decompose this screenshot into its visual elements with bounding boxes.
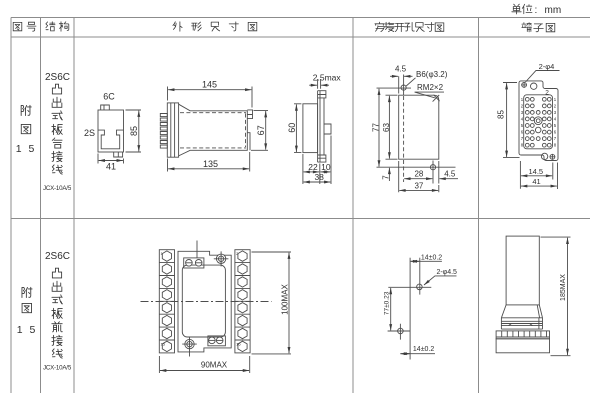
svg-text:JCX-10A/5: JCX-10A/5 — [43, 365, 72, 372]
svg-text:2S: 2S — [84, 128, 95, 138]
svg-text:22: 22 — [308, 162, 318, 172]
svg-text:RM2×2: RM2×2 — [417, 83, 444, 92]
svg-text:6: 6 — [554, 130, 557, 135]
svg-text:8: 8 — [554, 143, 557, 148]
svg-text:67: 67 — [256, 125, 266, 135]
svg-text:4: 4 — [554, 116, 557, 121]
svg-text:185MAX: 185MAX — [560, 274, 567, 301]
svg-text:B6(φ3.2): B6(φ3.2) — [416, 70, 448, 79]
svg-text:2S6C: 2S6C — [45, 72, 70, 83]
svg-text:63: 63 — [382, 123, 391, 132]
svg-text:4.5: 4.5 — [395, 65, 407, 74]
svg-text:1: 1 — [554, 97, 557, 102]
svg-text:4.5: 4.5 — [444, 170, 456, 179]
svg-text:2S6C: 2S6C — [45, 251, 70, 262]
svg-text:28: 28 — [414, 170, 423, 179]
svg-text:2-φ4: 2-φ4 — [539, 62, 555, 71]
svg-text::: : — [535, 5, 538, 16]
svg-text:2: 2 — [554, 103, 557, 108]
svg-text:mm: mm — [545, 5, 562, 16]
svg-text:38: 38 — [314, 172, 324, 182]
svg-text:7: 7 — [381, 175, 390, 180]
svg-text:2.5max: 2.5max — [313, 72, 342, 82]
svg-text:37: 37 — [414, 181, 423, 190]
svg-text:14±0.2: 14±0.2 — [413, 346, 434, 353]
svg-text:16: 16 — [236, 342, 241, 347]
svg-text:100MAX: 100MAX — [280, 283, 289, 314]
svg-text:135: 135 — [203, 159, 218, 169]
svg-text:JCX-10A/5: JCX-10A/5 — [43, 185, 72, 192]
svg-text:145: 145 — [202, 79, 217, 89]
svg-text:2-φ4.5: 2-φ4.5 — [436, 269, 457, 276]
svg-text:1 5: 1 5 — [17, 324, 38, 336]
svg-text:5: 5 — [554, 123, 557, 128]
svg-text:15: 15 — [161, 342, 166, 347]
svg-text:41: 41 — [532, 177, 540, 186]
svg-text:7: 7 — [554, 136, 557, 141]
svg-text:6C: 6C — [103, 92, 115, 102]
svg-text:10: 10 — [321, 162, 331, 172]
svg-text:60: 60 — [287, 123, 297, 133]
svg-text:2: 2 — [545, 90, 549, 97]
svg-text:77±0.23: 77±0.23 — [384, 291, 391, 315]
svg-text:41: 41 — [106, 161, 116, 171]
svg-text:85: 85 — [497, 110, 506, 119]
svg-text:1 5: 1 5 — [16, 143, 37, 155]
svg-text:90MAX: 90MAX — [201, 360, 228, 369]
svg-text:77: 77 — [372, 123, 381, 132]
svg-text:85: 85 — [129, 126, 139, 136]
svg-text:14.5: 14.5 — [528, 167, 543, 176]
svg-text:3: 3 — [554, 110, 557, 115]
svg-text:14±0.2: 14±0.2 — [421, 254, 442, 261]
